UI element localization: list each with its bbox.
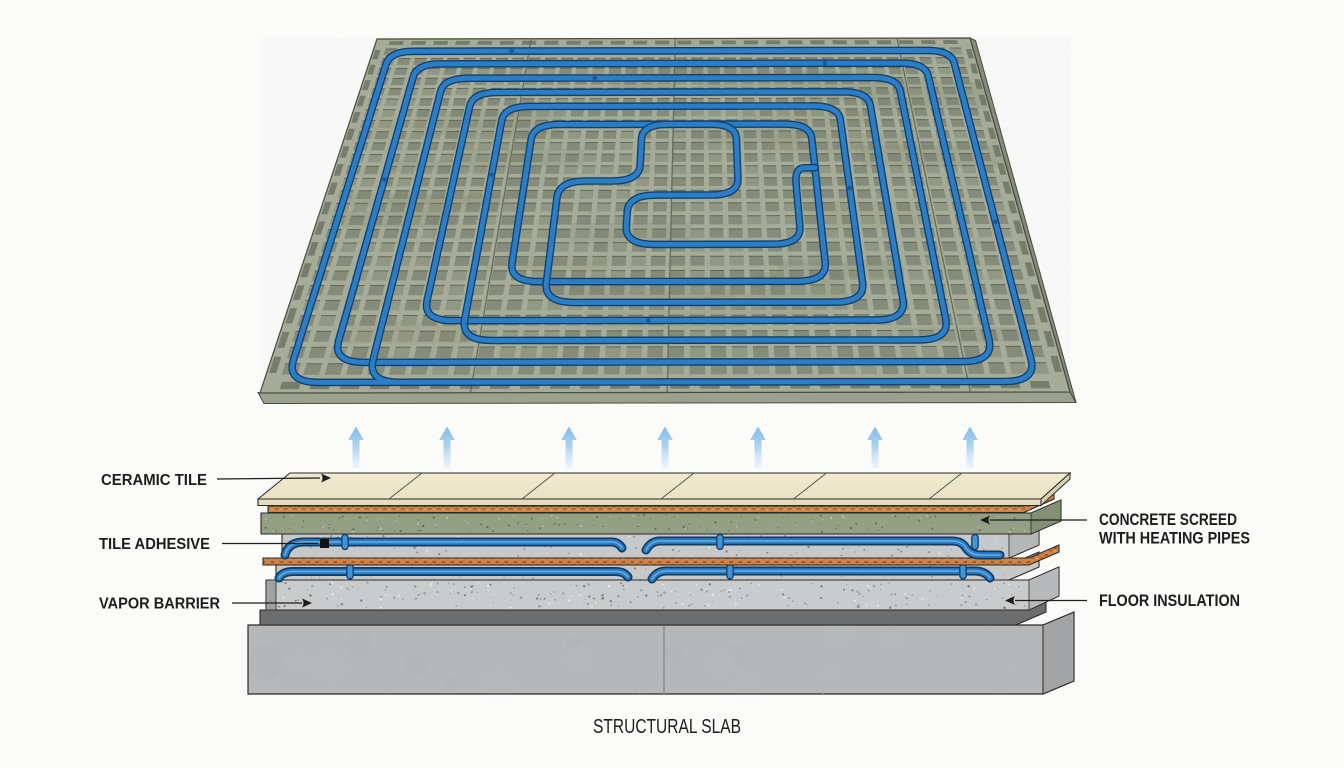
svg-text:VAPOR BARRIER: VAPOR BARRIER (99, 596, 220, 613)
svg-text:CERAMIC TILE: CERAMIC TILE (101, 472, 207, 489)
svg-text:CONCRETE SCREED: CONCRETE SCREED (1099, 511, 1237, 529)
svg-text:FLOOR INSULATION: FLOOR INSULATION (1099, 592, 1240, 610)
svg-text:WITH HEATING PIPES: WITH HEATING PIPES (1099, 530, 1250, 548)
svg-text:TILE ADHESIVE: TILE ADHESIVE (99, 536, 210, 553)
svg-text:STRUCTURAL SLAB: STRUCTURAL SLAB (593, 716, 741, 738)
